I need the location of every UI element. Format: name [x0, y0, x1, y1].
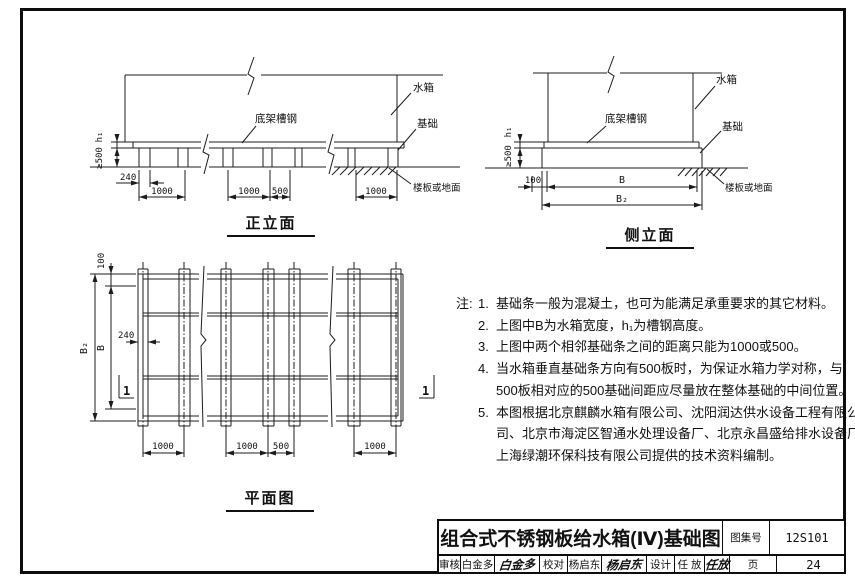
- note-line: 注: 1. 基础条一般为混凝土，也可为能满足承重要求的其它材料。: [456, 293, 844, 315]
- plan-view-drawing: 1 1 240 1000 1000 500 1000 100 B₂ B: [78, 248, 448, 518]
- atlas-number-value: 12S101: [769, 521, 844, 554]
- page-label: 页: [729, 556, 776, 573]
- reviewer-name: 白金多: [460, 556, 494, 573]
- front-dim-1000b: 1000: [238, 187, 260, 197]
- plan-dim-500: 500: [273, 442, 289, 452]
- plan-dim-B: B: [96, 345, 107, 351]
- designer-signature: 任放: [704, 556, 729, 573]
- front-elevation-title-text: 正立面: [245, 215, 296, 232]
- drawing-title: 组合式不锈钢板给水箱(Ⅳ)基础图: [439, 521, 722, 554]
- plan-dim-240: 240: [118, 331, 134, 341]
- front-dim-gte500: ≥500: [95, 147, 105, 169]
- plan-dim-B2: B₂: [79, 342, 90, 354]
- title-block-row1: 组合式不锈钢板给水箱(Ⅳ)基础图 图集号 12S101: [439, 521, 844, 556]
- plan-dim-1000c: 1000: [364, 442, 386, 452]
- notes-label: 注:: [456, 293, 478, 315]
- checker-signature: 杨启东: [601, 556, 646, 573]
- plan-view-title: 平面图: [226, 487, 314, 512]
- side-dim-100: 100: [525, 176, 541, 186]
- note-line: 3. 上图中两个相邻基础条之间的距离只能为1000或500。: [456, 336, 844, 358]
- plan-view-title-text: 平面图: [244, 490, 295, 507]
- note-line: 500板相对应的500基础间距应尽量放在整体基础的中间位置。: [456, 380, 844, 402]
- page-number: 24: [776, 556, 850, 573]
- side-label-floor: 楼板或地面: [725, 182, 773, 194]
- side-dim-gte500: ≥500: [504, 145, 514, 167]
- front-dim-h1: h₁: [95, 132, 105, 143]
- side-label-foundation: 基础: [722, 120, 743, 133]
- note-line: 司、北京市海淀区智通水处理设备厂、北京永昌盛给排水设备厂、: [456, 423, 844, 445]
- atlas-number-label: 图集号: [722, 521, 769, 554]
- plan-dim-100: 100: [97, 253, 107, 269]
- side-elevation-title-text: 侧立面: [624, 227, 675, 244]
- note-line: 2. 上图中B为水箱宽度，h₁为槽钢高度。: [456, 315, 844, 337]
- side-elevation-title: 侧立面: [606, 224, 694, 249]
- note-line: 上海绿潮环保科技有限公司提供的技术资料编制。: [456, 445, 844, 467]
- front-label-floor: 楼板或地面: [413, 182, 461, 194]
- title-block-row2: 审核 白金多 白金多 校对 杨启东 杨启东 设计 任 放 任放 页 24: [439, 556, 844, 573]
- drawing-page: 底架槽钢 水箱 基础 楼板或地面 240 1000 1000 500 1000 …: [0, 0, 855, 586]
- front-label-foundation: 基础: [417, 117, 438, 130]
- designer-label: 设计: [646, 556, 674, 573]
- section-mark-1-left: 1: [123, 384, 130, 398]
- note-line: 5. 本图根据北京麒麟水箱有限公司、沈阳润达供水设备工程有限公: [456, 402, 844, 424]
- checker-label: 校对: [539, 556, 567, 573]
- title-block: 组合式不锈钢板给水箱(Ⅳ)基础图 图集号 12S101 审核 白金多 白金多 校…: [437, 519, 846, 574]
- side-label-tank: 水箱: [716, 73, 737, 86]
- front-dim-1000c: 1000: [365, 187, 387, 197]
- plan-dim-1000b: 1000: [236, 442, 258, 452]
- reviewer-signature: 白金多: [494, 556, 539, 573]
- notes-block: 注: 1. 基础条一般为混凝土，也可为能满足承重要求的其它材料。 2. 上图中B…: [456, 293, 844, 467]
- front-dim-1000a: 1000: [151, 187, 173, 197]
- side-label-channel: 底架槽钢: [605, 112, 647, 125]
- side-dim-B: B: [619, 175, 625, 186]
- section-mark-1-right: 1: [422, 384, 429, 398]
- front-dim-240: 240: [120, 173, 136, 183]
- front-elevation-drawing: 底架槽钢 水箱 基础 楼板或地面 240 1000 1000 500 1000 …: [80, 50, 470, 235]
- side-dim-B2: B₂: [616, 194, 628, 205]
- reviewer-label: 审核: [439, 556, 460, 573]
- checker-name: 杨启东: [567, 556, 601, 573]
- note-line: 4. 当水箱垂直基础条方向有500板时，为保证水箱力学对称，与: [456, 358, 844, 380]
- side-elevation-drawing: 底架槽钢 水箱 基础 楼板或地面 100 B B₂ h₁ ≥500: [480, 50, 845, 250]
- front-label-channel: 底架槽钢: [255, 112, 297, 125]
- front-elevation-title: 正立面: [227, 212, 315, 237]
- plan-dim-1000a: 1000: [152, 442, 174, 452]
- front-label-tank: 水箱: [413, 81, 434, 94]
- front-dim-500: 500: [272, 187, 288, 197]
- designer-name: 任 放: [674, 556, 704, 573]
- side-dim-h1: h₁: [504, 127, 514, 138]
